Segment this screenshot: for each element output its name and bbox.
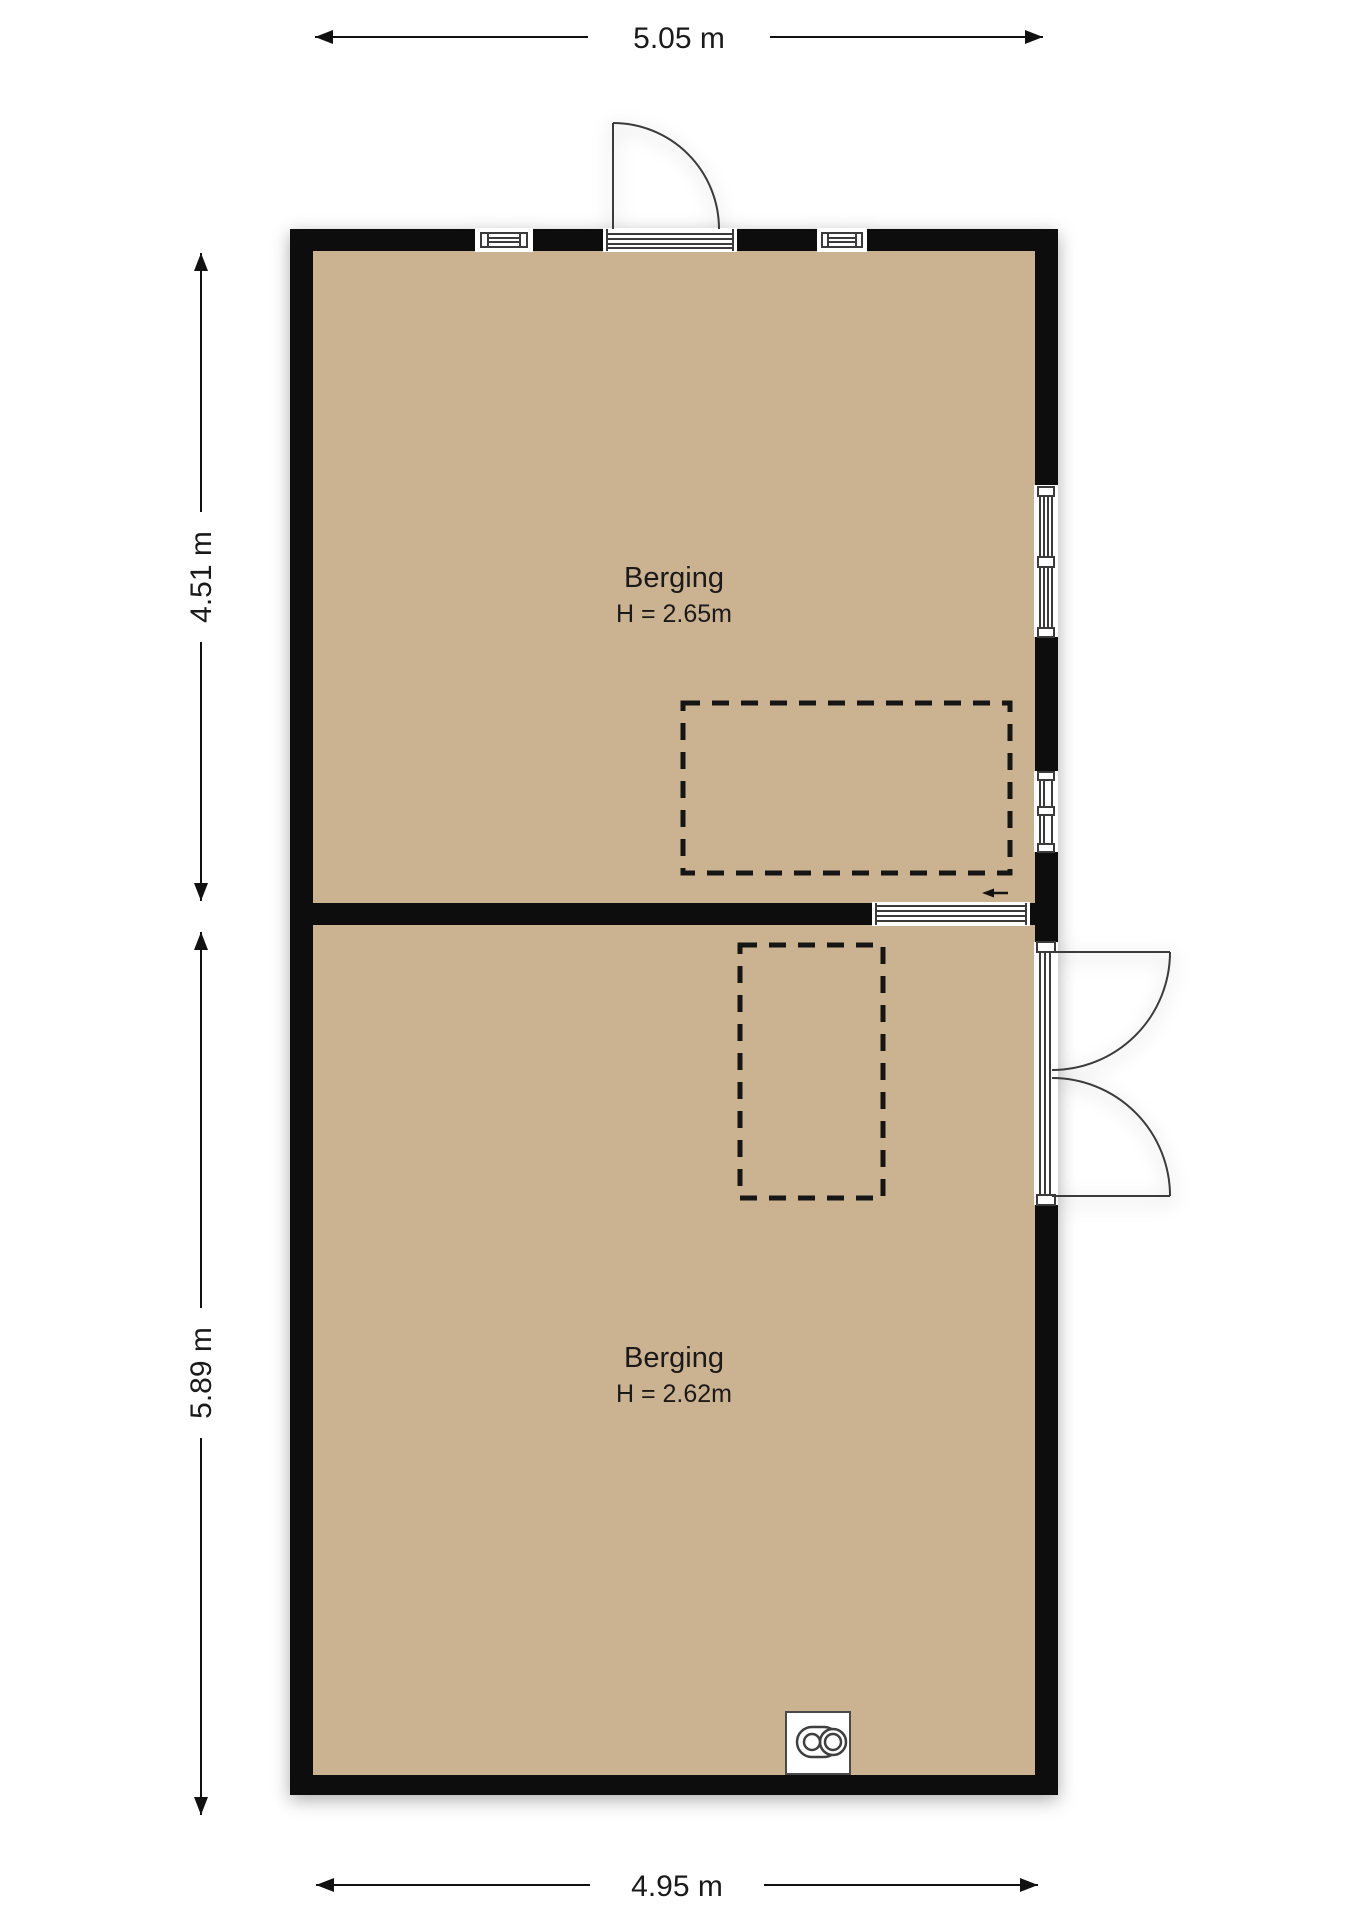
floorplan-canvas: 5.05 m 4.95 m 4.51 m 5.89 m Berging H = … — [0, 0, 1358, 1920]
dimension-left-upper-label: 4.51 m — [185, 531, 218, 623]
arrowhead-up-icon — [194, 932, 208, 950]
arrowhead-left-icon — [315, 30, 333, 44]
dimension-top-label: 5.05 m — [633, 22, 725, 55]
entry-door-top — [603, 123, 737, 252]
dimension-top: 5.05 m — [315, 22, 1043, 55]
window-right-lower — [1034, 771, 1058, 852]
room-height: H = 2.62m — [616, 1380, 732, 1408]
arrowhead-down-icon — [194, 1797, 208, 1815]
room-name: Berging — [624, 1342, 724, 1374]
boiler-icon — [786, 1712, 850, 1774]
door-swing-arc — [613, 123, 719, 229]
dimension-bottom-label: 4.95 m — [631, 1870, 723, 1903]
window-right-upper — [1034, 485, 1058, 637]
arrowhead-right-icon — [1025, 30, 1043, 44]
arrowhead-up-icon — [194, 253, 208, 271]
window-top-left — [475, 228, 533, 252]
floorplan-drawing: 5.05 m 4.95 m 4.51 m 5.89 m Berging H = … — [0, 0, 1358, 1920]
passage-threshold — [872, 902, 1030, 926]
arrowhead-right-icon — [1020, 1878, 1038, 1892]
room-height: H = 2.65m — [616, 600, 732, 628]
dimension-bottom: 4.95 m — [316, 1870, 1038, 1903]
double-door-right — [1034, 942, 1170, 1205]
dimension-left-upper: 4.51 m — [185, 253, 218, 901]
window-top-right — [817, 228, 867, 252]
dimension-left-lower: 5.89 m — [185, 932, 218, 1815]
arrowhead-down-icon — [194, 883, 208, 901]
arrowhead-left-icon — [316, 1878, 334, 1892]
door-swing-arc-upper — [1052, 952, 1170, 1070]
room-name: Berging — [624, 562, 724, 594]
building — [290, 123, 1170, 1795]
dimension-left-lower-label: 5.89 m — [185, 1327, 218, 1419]
door-swing-arc-lower — [1052, 1078, 1170, 1196]
